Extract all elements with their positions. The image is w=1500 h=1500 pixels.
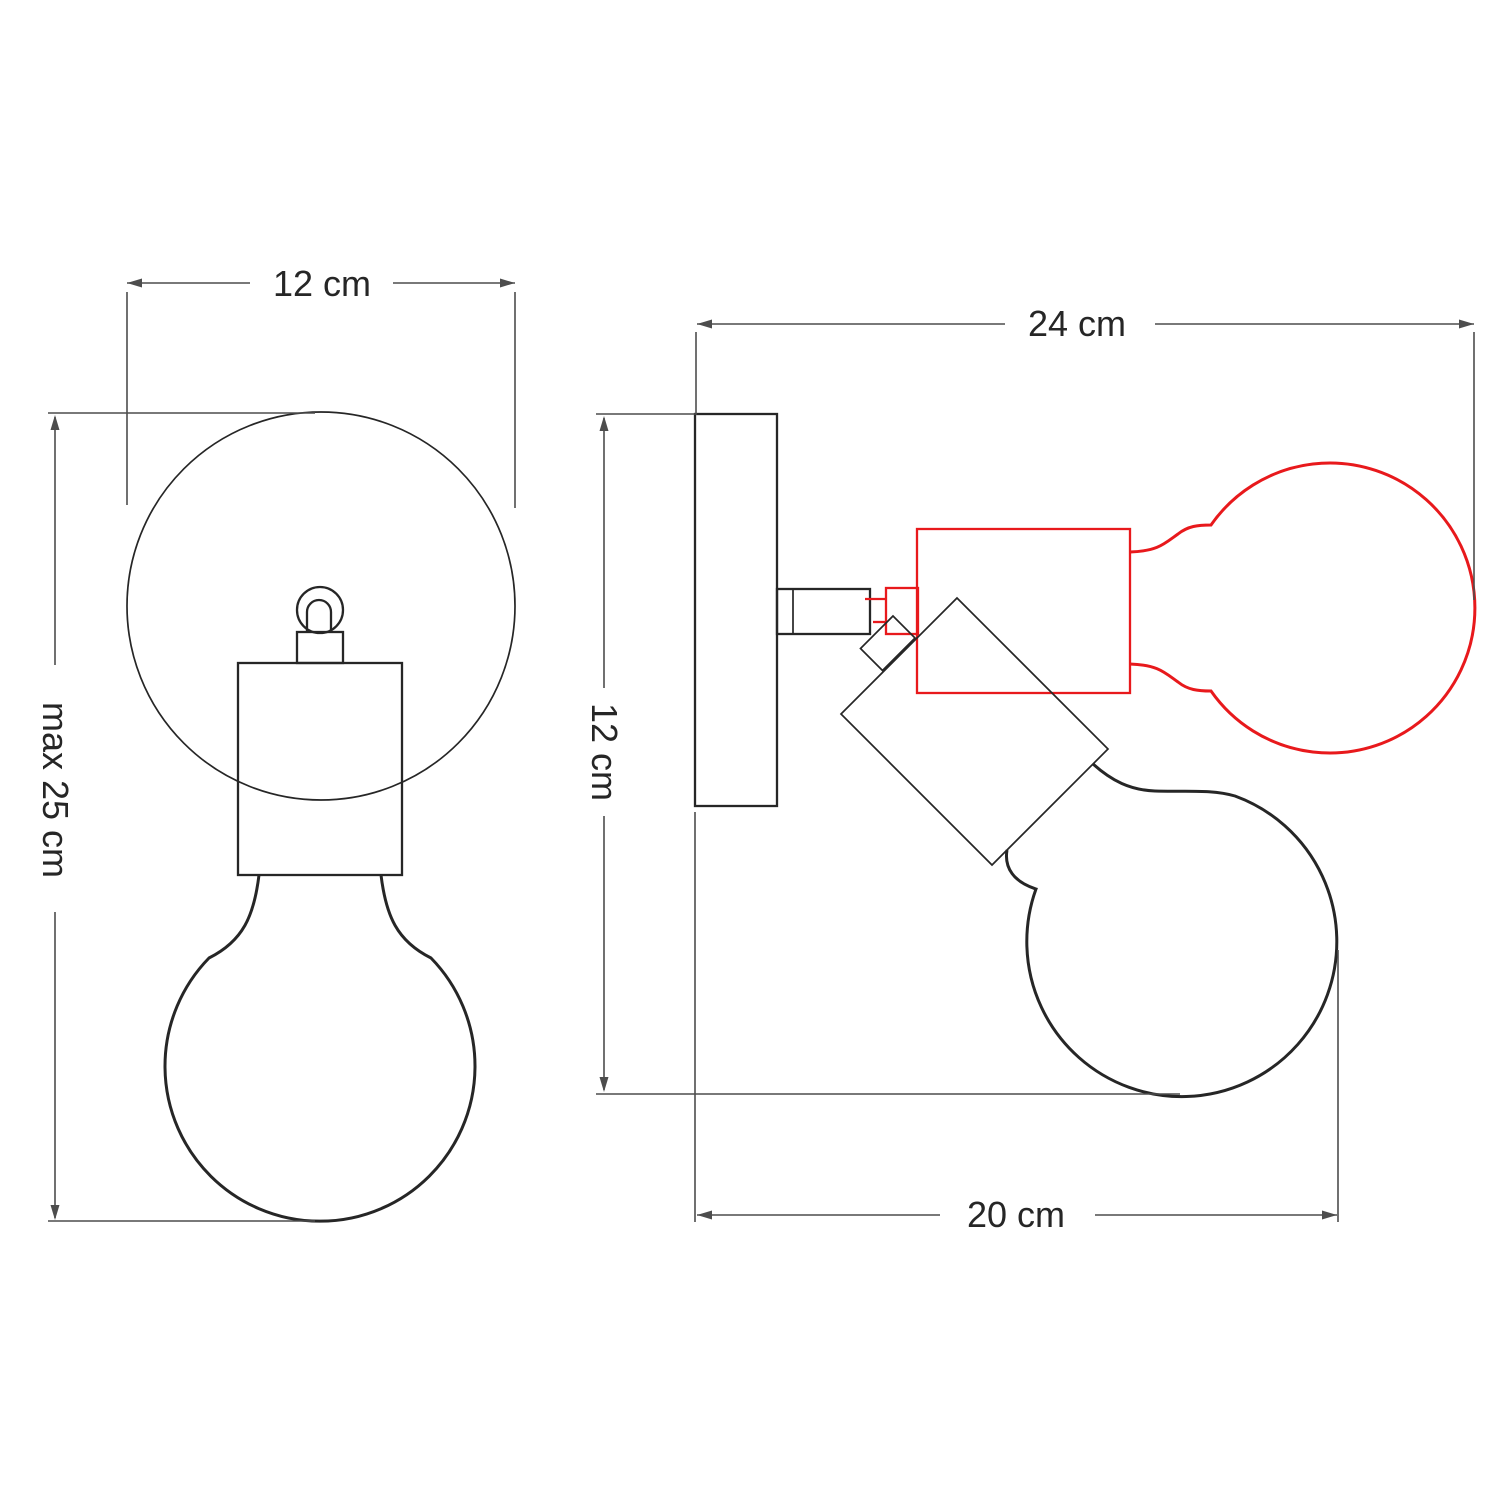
arrow-down-icon: [600, 1077, 609, 1092]
dim-label-side-reach: 20 cm: [967, 1194, 1065, 1235]
drawing-canvas: 12 cm max 25 cm 24 cm: [0, 0, 1500, 1500]
arrow-right-icon: [1459, 320, 1474, 329]
front-view: [127, 412, 515, 1221]
wall-plate-front: [127, 412, 515, 800]
arrow-left-icon: [697, 1211, 712, 1220]
bulb-raised: [1130, 463, 1475, 753]
lamp-socket-tilted: [841, 598, 1108, 865]
technical-drawing: 12 cm max 25 cm 24 cm: [0, 0, 1500, 1500]
dim-side-reach: 20 cm: [695, 812, 1338, 1235]
joint-block-tilted: [861, 616, 916, 671]
lamp-position-raised: [865, 463, 1475, 753]
arrow-up-icon: [600, 416, 609, 431]
dim-side-width: 24 cm: [696, 303, 1474, 600]
dim-label-side-height: 12 cm: [584, 703, 625, 801]
wall-plate-side: [695, 414, 777, 806]
dim-label-front-height: max 25 cm: [35, 702, 76, 878]
hanging-ring-inner: [307, 600, 331, 632]
arrow-right-icon: [1322, 1211, 1337, 1220]
hanging-ring-outer: [297, 587, 343, 633]
dim-label-front-width: 12 cm: [273, 263, 371, 304]
lamp-position-tilted: [841, 598, 1337, 1097]
bulb-tilted: [1006, 764, 1336, 1097]
dim-front-width: 12 cm: [127, 263, 515, 508]
mounting-arm: [777, 589, 870, 634]
lamp-socket-front: [238, 663, 402, 875]
arrow-up-icon: [51, 415, 60, 430]
arrow-left-icon: [127, 279, 142, 288]
bulb-front: [165, 875, 475, 1221]
dim-label-side-width: 24 cm: [1028, 303, 1126, 344]
arrow-left-icon: [697, 320, 712, 329]
arrow-down-icon: [51, 1205, 60, 1220]
side-view: [695, 414, 1475, 1097]
arrow-right-icon: [500, 279, 515, 288]
dimensions: 12 cm max 25 cm 24 cm: [35, 263, 1474, 1235]
socket-cap-front: [297, 632, 343, 663]
lamp-socket-raised: [917, 529, 1130, 693]
dim-front-height: max 25 cm: [35, 413, 315, 1221]
joint-block-raised: [886, 588, 918, 634]
